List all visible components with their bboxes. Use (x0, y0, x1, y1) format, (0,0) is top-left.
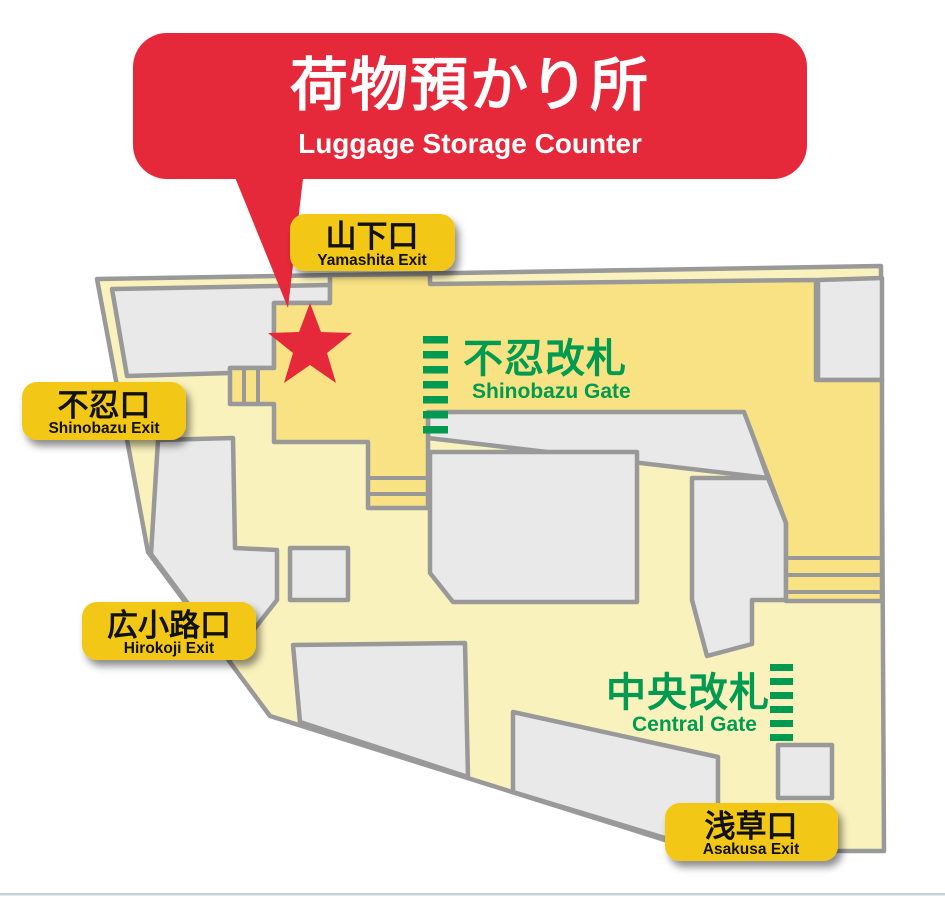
central-gate-jp: 中央改札 (606, 671, 770, 715)
exit-label-asakusa: 浅草口 Asakusa Exit (665, 803, 838, 861)
exit-label-hirokoji: 広小路口 Hirokoji Exit (82, 602, 256, 660)
building-block (293, 643, 468, 777)
callout-subtitle: Luggage Storage Counter (298, 128, 642, 159)
exit-label-yamashita: 山下口 Yamashita Exit (290, 214, 455, 271)
station-map-svg: 不忍改札 Shinobazu Gate 中央改札 Central Gate 荷物… (0, 0, 945, 900)
yamashita-exit-en: Yamashita Exit (317, 252, 426, 269)
callout-title: 荷物預かり所 (290, 53, 650, 118)
asakusa-exit-en: Asakusa Exit (703, 841, 800, 858)
bottom-divider (0, 893, 945, 896)
shinobazu-exit-en: Shinobazu Exit (48, 420, 159, 437)
building-block (818, 278, 882, 380)
hirokoji-exit-en: Hirokoji Exit (124, 640, 214, 657)
building-block (290, 548, 348, 600)
shinobazu-gate-jp: 不忍改札 (463, 337, 627, 381)
shinobazu-exit-jp: 不忍口 (58, 388, 151, 423)
yamashita-exit-jp: 山下口 (326, 219, 419, 254)
hirokoji-exit-jp: 広小路口 (107, 608, 231, 643)
building-block (430, 452, 637, 602)
exit-label-shinobazu: 不忍口 Shinobazu Exit (22, 382, 186, 440)
asakusa-exit-jp: 浅草口 (705, 809, 798, 844)
station-map-page: 不忍改札 Shinobazu Gate 中央改札 Central Gate 荷物… (0, 0, 945, 900)
central-gate-en: Central Gate (632, 713, 757, 736)
gate-label-shinobazu: 不忍改札 Shinobazu Gate (463, 337, 631, 403)
shinobazu-gate-en: Shinobazu Gate (472, 380, 631, 403)
building-block (778, 745, 832, 798)
